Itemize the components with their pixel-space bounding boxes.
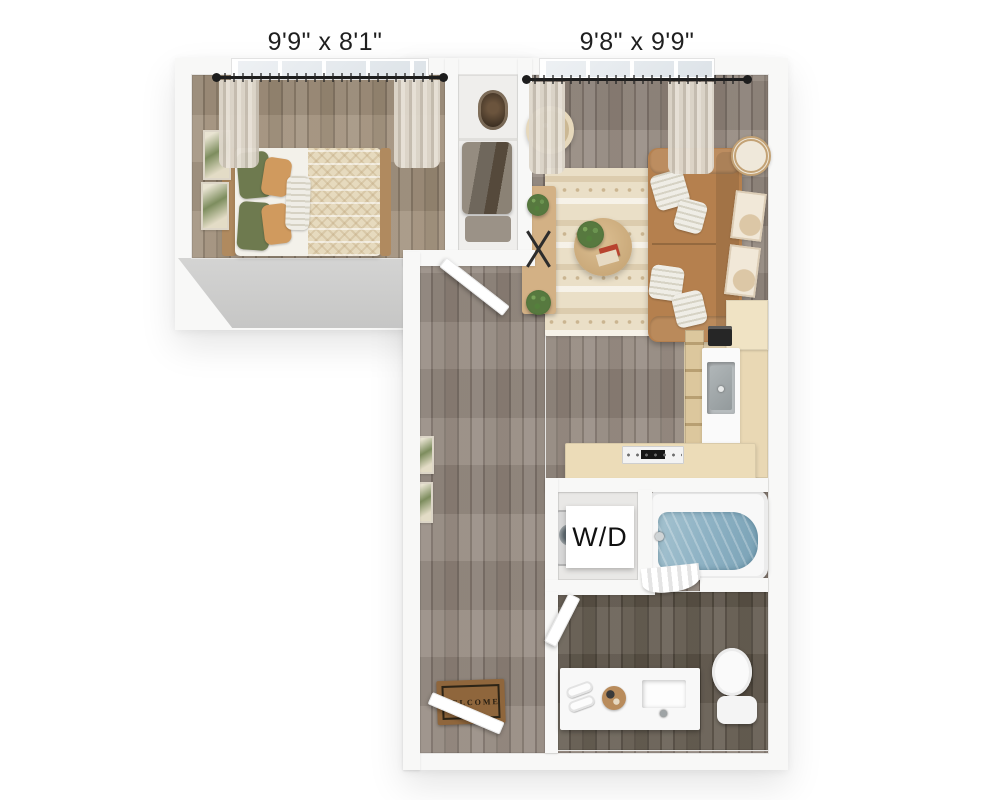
bathtub-water xyxy=(658,512,758,570)
living-curtain-rod xyxy=(528,78,746,81)
range-stove xyxy=(622,446,684,464)
kitchen-corner-cabinet xyxy=(726,300,768,350)
wall-bathroom-top xyxy=(545,580,655,595)
washer-dryer-label: W/D xyxy=(566,506,634,568)
sofa-cushion-seam xyxy=(652,243,716,245)
bedroom-curtain-rod xyxy=(218,76,442,79)
living-curtain-left xyxy=(529,82,565,174)
wall-hall-top xyxy=(403,250,535,266)
bathroom-sink xyxy=(642,680,686,708)
bathtub-faucet xyxy=(655,532,664,541)
toilet-tank xyxy=(717,696,757,724)
wall-hall-left xyxy=(403,252,420,770)
closet-hanging-clothes xyxy=(462,142,512,214)
living-curtain-right xyxy=(668,82,714,174)
curtain-hooks xyxy=(224,73,436,82)
wall-tub-bottom xyxy=(700,578,768,592)
pillow-striped xyxy=(285,176,311,231)
toilet xyxy=(712,648,752,696)
potted-plant xyxy=(526,290,551,315)
kitchen-sink xyxy=(707,362,735,414)
closet-shelf xyxy=(458,138,518,141)
round-woven-mirror xyxy=(731,136,771,176)
bed-duvet xyxy=(308,148,381,256)
living-wall-art xyxy=(724,244,761,297)
wall-laundry-left xyxy=(545,478,558,588)
hallway-floor xyxy=(420,252,545,753)
art-print xyxy=(203,184,227,228)
bedroom-curtain-right xyxy=(394,80,440,168)
potted-plant xyxy=(527,194,549,216)
living-wall-art xyxy=(730,190,767,241)
coffee-maker xyxy=(708,326,732,346)
bathroom-faucet xyxy=(660,710,667,717)
bed-footboard xyxy=(380,148,391,256)
range-knobs xyxy=(624,452,682,458)
art-print xyxy=(726,247,758,296)
closet-basket xyxy=(478,90,508,130)
curtain-hooks xyxy=(534,75,740,84)
floor-plan: 9'9" x 8'1" 9'8" x 9'9" xyxy=(0,0,1000,800)
bedroom-wall-art xyxy=(201,182,229,230)
wall-laundry-top xyxy=(545,478,768,492)
wall-bedroom-closet xyxy=(445,58,458,258)
bedroom-curtain-left xyxy=(219,80,259,168)
sink-faucet xyxy=(718,386,724,392)
living-room-dimensions-label: 9'8" x 9'9" xyxy=(513,28,761,57)
closet-folded-blanket xyxy=(465,216,511,242)
art-print xyxy=(732,193,764,240)
bedroom-dimensions-label: 9'9" x 8'1" xyxy=(200,28,450,57)
vanity-tray xyxy=(602,686,626,710)
potted-plant xyxy=(577,221,604,248)
